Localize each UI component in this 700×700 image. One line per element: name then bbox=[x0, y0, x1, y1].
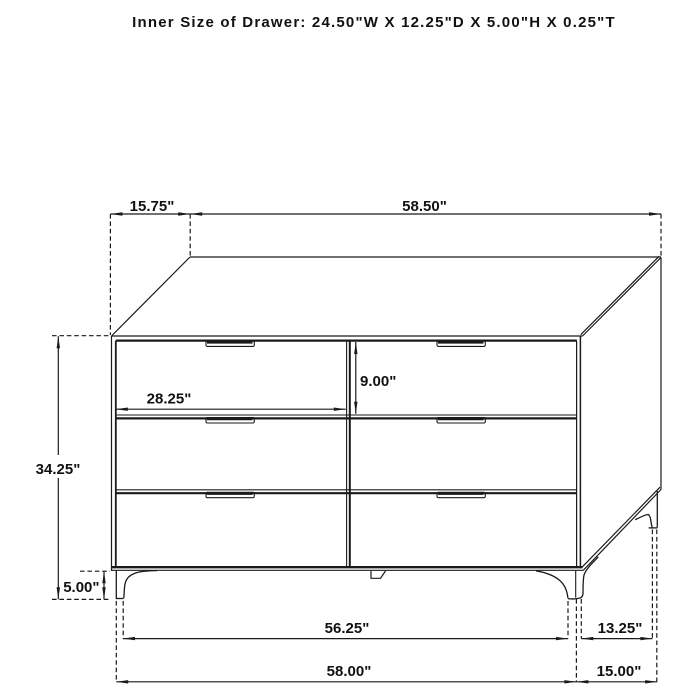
svg-text:34.25": 34.25" bbox=[36, 461, 81, 478]
svg-text:9.00": 9.00" bbox=[360, 373, 396, 390]
svg-text:56.25": 56.25" bbox=[325, 620, 370, 637]
svg-text:13.25": 13.25" bbox=[598, 620, 643, 637]
svg-text:58.00": 58.00" bbox=[327, 663, 372, 680]
svg-text:5.00": 5.00" bbox=[63, 579, 99, 596]
svg-text:58.50": 58.50" bbox=[402, 198, 447, 215]
svg-text:Inner Size of Drawer: 24.50"W: Inner Size of Drawer: 24.50"W X 12.25"D … bbox=[132, 14, 616, 31]
svg-text:15.00": 15.00" bbox=[597, 663, 642, 680]
svg-text:28.25": 28.25" bbox=[147, 391, 192, 408]
svg-text:15.75": 15.75" bbox=[130, 198, 175, 215]
